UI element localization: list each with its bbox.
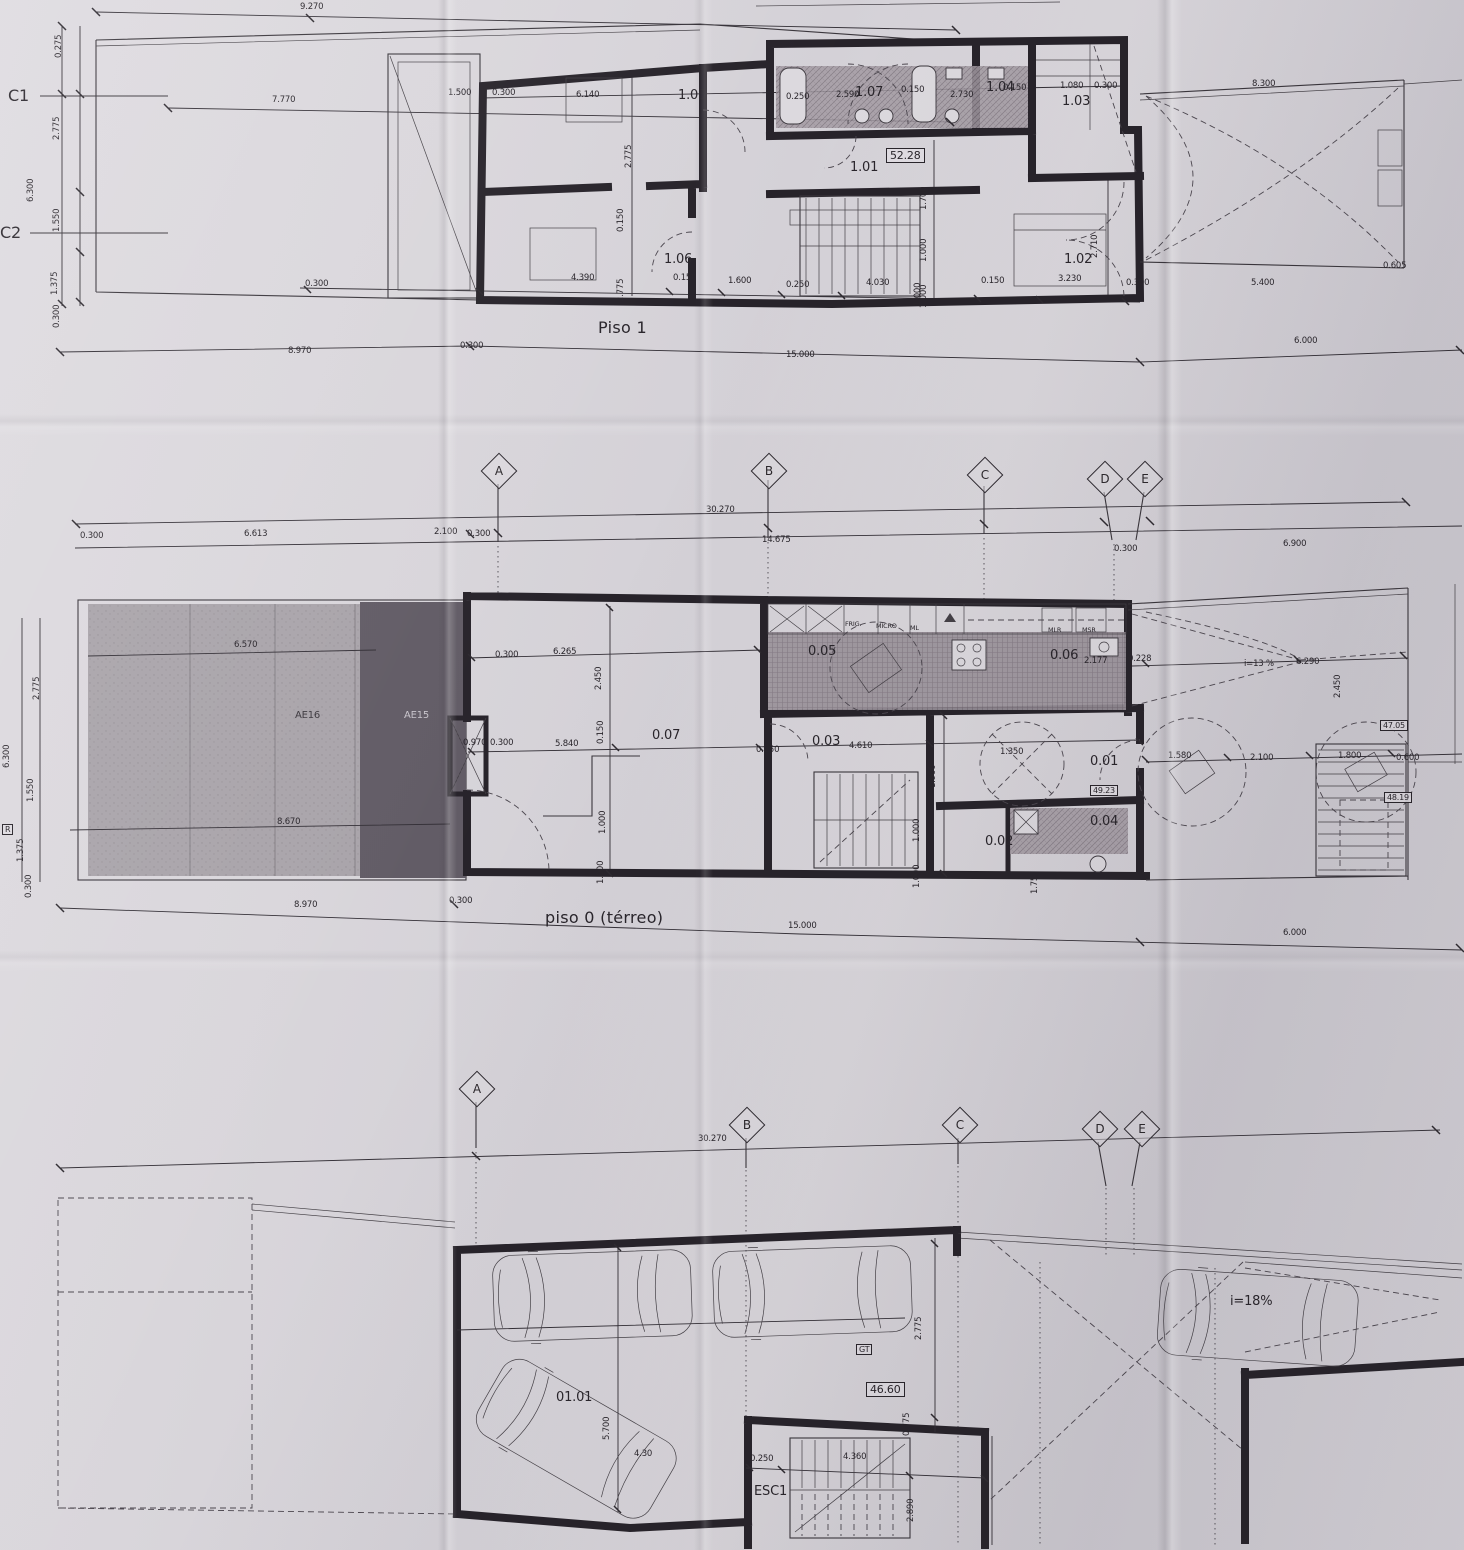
room-label: 0.06 xyxy=(1050,648,1078,663)
dim-label: 1.800 xyxy=(1338,751,1361,761)
dim-label: 0.300 xyxy=(1126,278,1149,288)
dim-label-vertical: 0.300 xyxy=(52,305,62,328)
dim-label: 6.613 xyxy=(244,529,267,539)
ramp-slope-label: i=18% xyxy=(1230,1294,1272,1309)
dim-label-vertical: 1.000 xyxy=(912,819,922,842)
dim-label: 1.500 xyxy=(448,88,471,98)
dim-label: 15.000 xyxy=(786,350,815,360)
area-badge: 46.60 xyxy=(866,1382,905,1397)
dim-label: 6.140 xyxy=(576,90,599,100)
appliance-label: FRIG. xyxy=(845,620,861,628)
dim-label: 0.228 xyxy=(1128,654,1151,664)
dim-label: 6.290 xyxy=(1296,657,1319,667)
dim-label: 9.270 xyxy=(300,2,323,12)
dim-label: 2.100 xyxy=(434,527,457,537)
dim-label: 15.000 xyxy=(788,921,817,931)
dim-label-vertical: 1.000 xyxy=(912,865,922,888)
dim-label-vertical: 2.775 xyxy=(32,677,42,700)
area-badge: 52.28 xyxy=(886,148,925,163)
dim-label: 7.770 xyxy=(272,95,295,105)
dim-label: 6.570 xyxy=(234,640,257,650)
room-label: 1.05 xyxy=(678,88,706,103)
floor-plan-sheet: C1 C2 9.270 7.770 0.275 2.775 6.300 1.55… xyxy=(0,0,1464,1550)
dim-label-vertical: 1.375 xyxy=(50,272,60,295)
dim-label-vertical: 0.150 xyxy=(596,721,606,744)
appliance-label: MLR xyxy=(1048,626,1061,634)
dim-label-vertical: 6.300 xyxy=(2,745,12,768)
dim-label: 1.080 xyxy=(1060,81,1083,91)
title-piso1: Piso 1 xyxy=(598,318,647,337)
dim-label-vertical: 1.550 xyxy=(26,779,36,802)
dim-label: 4.30 xyxy=(634,1449,652,1459)
dim-label-vertical: 2.775 xyxy=(616,279,626,302)
dim-label-vertical: 6.300 xyxy=(26,179,36,202)
room-label: 1.03 xyxy=(1062,94,1090,109)
dim-label: 4.390 xyxy=(571,273,594,283)
dim-label-vertical: 1.700 xyxy=(919,187,929,210)
dim-label: 14.675 xyxy=(762,535,791,545)
dim-label-vertical: 2.775 xyxy=(624,145,634,168)
piso1-plan xyxy=(30,2,1462,362)
dim-label-vertical: 1.900 xyxy=(928,765,938,788)
title-piso0: piso 0 (térreo) xyxy=(545,908,663,927)
area-badge: 49.23 xyxy=(1090,785,1118,796)
dim-label-vertical: 2.775 xyxy=(914,1317,924,1340)
dim-label-vertical: 1.000 xyxy=(913,283,923,306)
dim-label: 1.580 xyxy=(1168,751,1191,761)
dim-label: 4.610 xyxy=(849,741,872,751)
dim-label: 1.350 xyxy=(1000,747,1023,757)
room-label: 0.02 xyxy=(985,834,1013,849)
room-label: 1.06 xyxy=(664,252,692,267)
ramp-slope-label: i=13 % xyxy=(1244,659,1274,669)
dim-label-vertical: 0.300 xyxy=(24,875,34,898)
dim-label: 4.030 xyxy=(866,278,889,288)
dim-label: 0.300 xyxy=(449,896,472,906)
dim-label: 4.360 xyxy=(843,1452,866,1462)
dim-label: 30.270 xyxy=(706,505,735,515)
dim-label-vertical: 0.275 xyxy=(54,35,64,58)
dim-label-vertical: 2.890 xyxy=(906,1499,916,1522)
dim-label-vertical: 1.000 xyxy=(598,811,608,834)
room-label: 0.03 xyxy=(812,734,840,749)
room-label: 1.01 xyxy=(850,160,878,175)
dim-label: 0.250 xyxy=(786,280,809,290)
dim-label: 0.300 xyxy=(460,341,483,351)
dim-label: 0.605 xyxy=(1383,261,1406,271)
dim-label-vertical: 1.75 xyxy=(1030,876,1040,894)
room-label: 1.02 xyxy=(1064,252,1092,267)
dim-label: 0.300 xyxy=(492,88,515,98)
dim-label: 5.400 xyxy=(1251,278,1274,288)
dim-label: 8.970 xyxy=(294,900,317,910)
dim-label: 6.265 xyxy=(553,647,576,657)
section-marker: C2 xyxy=(0,223,21,242)
room-label: 0.07 xyxy=(652,728,680,743)
dim-label: 8.970 xyxy=(288,346,311,356)
dim-label: 0.150 xyxy=(901,85,924,95)
dim-label: 30.270 xyxy=(698,1134,727,1144)
dim-label-vertical: 0.775 xyxy=(902,1413,912,1436)
appliance-label: MSR xyxy=(1082,626,1096,634)
dim-label: 0.300 xyxy=(467,529,490,539)
dim-label: 2.730 xyxy=(950,90,973,100)
dim-label: 6.900 xyxy=(1283,539,1306,549)
dim-label: 0.300 xyxy=(1114,544,1137,554)
dim-label-vertical: 1.550 xyxy=(52,209,62,232)
dim-label: 0.250 xyxy=(786,92,809,102)
dim-label: 6.000 xyxy=(1283,928,1306,938)
dim-label: 3.230 xyxy=(1058,274,1081,284)
dim-label: 2.100 xyxy=(1250,753,1273,763)
dim-label: 0.600 xyxy=(1396,753,1419,763)
zone-label: AE16 xyxy=(295,710,320,721)
section-marker: C1 xyxy=(8,86,29,105)
room-label: 0.04 xyxy=(1090,814,1118,829)
gt-badge: GT xyxy=(856,1344,872,1355)
dim-label: 6.000 xyxy=(1294,336,1317,346)
room-label: 01.01 xyxy=(556,1390,592,1405)
appliance-label: ML xyxy=(910,624,919,632)
piso0-plan xyxy=(22,584,1462,950)
dim-label-vertical: 1.000 xyxy=(919,239,929,262)
dim-label: 0.250 xyxy=(750,1454,773,1464)
area-badge: 47.05 xyxy=(1380,720,1408,731)
dim-label: 0.300 xyxy=(80,531,103,541)
dim-label: 0.300 xyxy=(490,738,513,748)
dim-label-vertical: 2.450 xyxy=(594,667,604,690)
dim-label: 8.670 xyxy=(277,817,300,827)
room-label: 0.01 xyxy=(1090,754,1118,769)
dim-label: 0.300 xyxy=(495,650,518,660)
dim-label: 8.300 xyxy=(1252,79,1275,89)
dim-label: 5.840 xyxy=(555,739,578,749)
dim-label-vertical: 1.000 xyxy=(596,861,606,884)
area-badge: 48.19 xyxy=(1384,792,1412,803)
plan-linework xyxy=(0,0,1464,1550)
room-label: 0.05 xyxy=(808,644,836,659)
dim-label-vertical: 0.150 xyxy=(616,209,626,232)
dim-label-vertical: 1.375 xyxy=(16,839,26,862)
dim-label: 0.970 xyxy=(463,738,486,748)
room-label: 1.07 xyxy=(855,85,883,100)
appliance-label: MICRO xyxy=(876,622,897,630)
dim-label: 0.250 xyxy=(756,745,779,755)
dim-label: 0.300 xyxy=(1094,81,1117,91)
dim-label: 2.177 xyxy=(1084,656,1107,666)
zone-badge: R xyxy=(2,824,13,835)
dim-label: 0.150 xyxy=(981,276,1004,286)
dim-label: 0.150 xyxy=(673,273,696,283)
dim-label: 0.300 xyxy=(305,279,328,289)
dim-label-vertical: 5.700 xyxy=(602,1417,612,1440)
stair-label: ESC1 xyxy=(754,1484,787,1499)
dim-label-vertical: 2.450 xyxy=(1333,675,1343,698)
zone-label: AE15 xyxy=(404,710,429,721)
dim-label: 1.600 xyxy=(728,276,751,286)
room-label: 1.04 xyxy=(986,80,1014,95)
dim-label-vertical: 2.775 xyxy=(52,117,62,140)
